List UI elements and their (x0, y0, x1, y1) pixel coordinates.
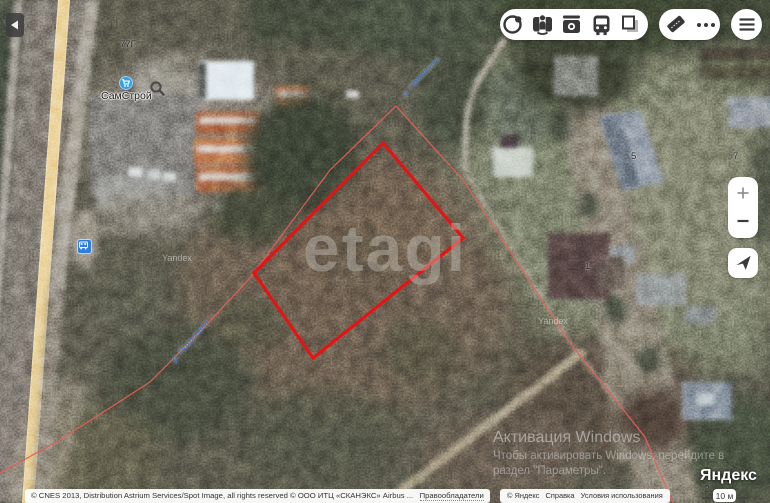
svg-text:10 м: 10 м (716, 491, 734, 501)
